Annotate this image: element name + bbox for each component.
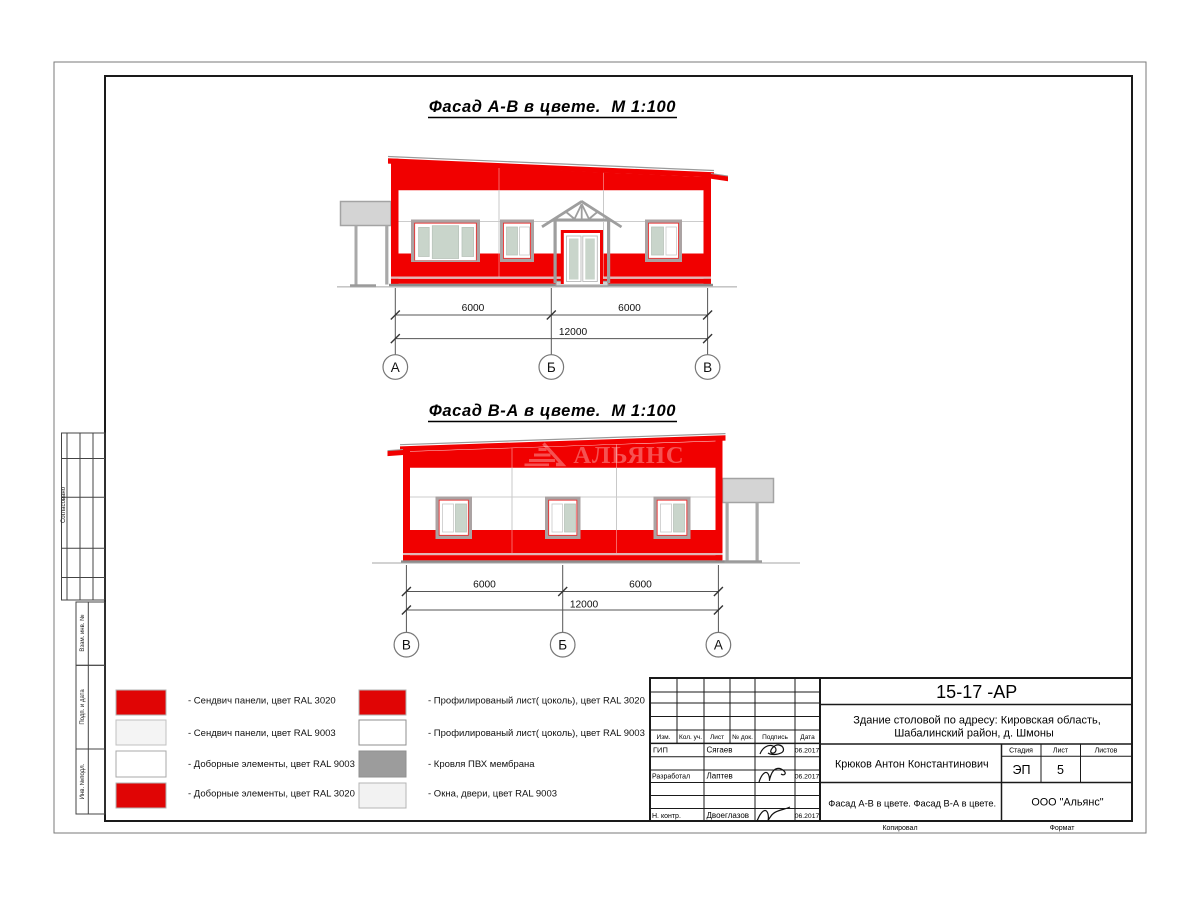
svg-text:Фасад А-В в цвете. М 1:100: Фасад А-В в цвете. М 1:100: [429, 98, 676, 116]
svg-text:Подпись: Подпись: [762, 734, 788, 741]
svg-text:6000: 6000: [462, 303, 485, 314]
svg-text:Здание столовой по адресу: Кир: Здание столовой по адресу: Кировская обл…: [853, 715, 1101, 727]
svg-text:А: А: [391, 360, 400, 375]
svg-text:- Кровля ПВХ мембрана: - Кровля ПВХ мембрана: [428, 759, 535, 770]
svg-text:- Окна, двери, цвет RAL 9003: - Окна, двери, цвет RAL 9003: [428, 789, 557, 800]
svg-text:Разработал: Разработал: [652, 773, 690, 781]
svg-text:Инв. №подл.: Инв. №подл.: [79, 763, 86, 799]
svg-text:5: 5: [1057, 763, 1064, 777]
svg-text:- Сендвич панели, цвет RAL 900: - Сендвич панели, цвет RAL 9003: [188, 728, 336, 739]
svg-text:06.2017: 06.2017: [795, 813, 820, 820]
svg-text:ЭП: ЭП: [1013, 763, 1031, 777]
svg-text:ГИП: ГИП: [653, 746, 668, 755]
svg-text:Подп. и дата: Подп. и дата: [80, 689, 86, 725]
svg-text:6000: 6000: [473, 580, 496, 591]
svg-text:Фасад В-А в цвете. М 1:100: Фасад В-А в цвете. М 1:100: [429, 402, 676, 420]
svg-text:Лист: Лист: [710, 734, 724, 741]
svg-text:Формат: Формат: [1050, 825, 1076, 832]
svg-text:- Профилированый лист( цоколь): - Профилированый лист( цоколь), цвет RAL…: [428, 696, 645, 707]
svg-text:Листов: Листов: [1095, 748, 1118, 755]
svg-text:Фасад А-В в цвете. Фасад В-А в: Фасад А-В в цвете. Фасад В-А в цвете.: [828, 799, 996, 809]
svg-text:Сягаев: Сягаев: [707, 746, 733, 755]
svg-text:Крюков Антон Константинович: Крюков Антон Константинович: [835, 759, 989, 771]
svg-text:06.2017: 06.2017: [795, 748, 820, 755]
svg-text:АЛЬЯНС: АЛЬЯНС: [573, 442, 684, 469]
svg-text:Двоеглазов: Двоеглазов: [707, 811, 750, 820]
svg-text:- Профилированый лист( цоколь): - Профилированый лист( цоколь), цвет RAL…: [428, 728, 645, 739]
svg-text:Н. контр.: Н. контр.: [652, 813, 681, 820]
svg-text:6000: 6000: [618, 303, 641, 314]
svg-text:6000: 6000: [629, 580, 652, 591]
svg-text:Взам. инв. №: Взам. инв. №: [79, 614, 86, 651]
svg-text:Б: Б: [558, 638, 567, 653]
svg-text:Стадия: Стадия: [1009, 748, 1033, 755]
svg-text:ООО "Альянс": ООО "Альянс": [1031, 797, 1103, 809]
svg-text:А: А: [714, 638, 723, 653]
svg-text:12000: 12000: [570, 600, 599, 611]
svg-text:В: В: [402, 638, 411, 653]
svg-text:Б: Б: [547, 360, 556, 375]
svg-text:В: В: [703, 360, 712, 375]
svg-text:№ док.: № док.: [732, 734, 753, 741]
svg-text:Дата: Дата: [800, 734, 815, 741]
svg-text:- Доборные элементы, цвет RAL: - Доборные элементы, цвет RAL 3020: [188, 789, 355, 800]
svg-text:15-17 -АР: 15-17 -АР: [936, 682, 1017, 702]
svg-text:Копировал: Копировал: [882, 825, 917, 832]
svg-text:06.2017: 06.2017: [795, 774, 820, 781]
svg-text:Лаптев: Лаптев: [707, 772, 733, 781]
svg-text:Согласовано: Согласовано: [61, 486, 67, 523]
svg-text:Изм.: Изм.: [657, 734, 671, 741]
svg-text:Шабалинский район, д. Шмоны: Шабалинский район, д. Шмоны: [894, 728, 1054, 740]
svg-text:Лист: Лист: [1053, 748, 1069, 755]
svg-text:Кол. уч.: Кол. уч.: [679, 734, 702, 741]
svg-text:- Сендвич панели, цвет RAL 302: - Сендвич панели, цвет RAL 3020: [188, 696, 336, 707]
svg-text:- Доборные элементы, цвет RAL: - Доборные элементы, цвет RAL 9003: [188, 759, 355, 770]
svg-text:12000: 12000: [559, 327, 588, 338]
